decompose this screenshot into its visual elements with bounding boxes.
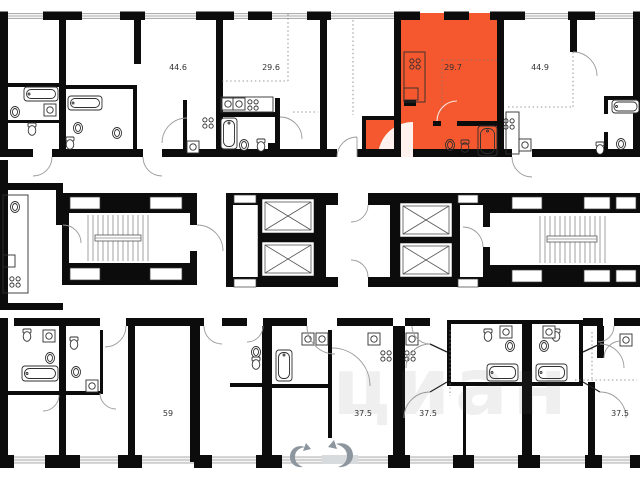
- elevator-shaft-4: [398, 241, 454, 279]
- staircase-right: [540, 216, 605, 263]
- sink-icon: [11, 107, 20, 118]
- elevator-shaft-1: [260, 197, 316, 235]
- cian-swirl-icon: [290, 443, 311, 467]
- sink-icon: [74, 123, 83, 134]
- washer-icon: [543, 326, 555, 338]
- stove-icon: [248, 100, 258, 110]
- elevator-shaft-2: [260, 240, 316, 278]
- kitchen-counter: [506, 112, 519, 154]
- washer-icon: [500, 326, 512, 338]
- unit-label-59: 59: [163, 409, 173, 418]
- washer-icon: [43, 330, 55, 342]
- bathtub-icon: [24, 87, 58, 101]
- washer-icon: [620, 334, 632, 346]
- stove-icon: [10, 277, 20, 287]
- unit-label-37-5-a: 37.5: [354, 409, 372, 418]
- kitchen-sink-icon: [222, 98, 234, 110]
- interior-walls-top: [0, 12, 640, 157]
- bathtub-icon: [276, 350, 292, 381]
- washer-icon: [187, 141, 199, 153]
- bathtub-icon: [22, 366, 58, 381]
- unit-label-29-7: 29.7: [444, 63, 462, 72]
- unit-label-44-6: 44.6: [169, 63, 187, 72]
- sink-icon: [11, 202, 20, 213]
- elevator-shafts: [260, 197, 454, 279]
- washer-icon: [519, 139, 531, 151]
- washer-icon: [86, 380, 98, 392]
- bathtub-icon: [221, 118, 237, 149]
- watermark-text: циан: [333, 343, 572, 433]
- unit-label-44-9: 44.9: [531, 63, 549, 72]
- sink-icon: [46, 353, 55, 364]
- elevator-shaft-3: [398, 201, 454, 239]
- unit-label-37-5-b: 37.5: [419, 409, 437, 418]
- toilet-icon: [70, 337, 78, 349]
- unit-label-29-6: 29.6: [262, 63, 280, 72]
- sink-icon: [240, 140, 249, 151]
- bathtub-icon: [612, 100, 639, 113]
- washer-icon: [316, 333, 328, 345]
- toilet-icon: [28, 123, 36, 135]
- kitchen-sink-icon: [233, 98, 245, 110]
- sink-icon: [113, 128, 122, 139]
- toilet-icon: [257, 139, 265, 151]
- toilet-icon: [66, 137, 74, 149]
- toilet-icon: [596, 142, 604, 154]
- sink-icon: [72, 367, 81, 378]
- washer-icon: [44, 104, 56, 116]
- bathtub-icon: [68, 96, 102, 110]
- selected-unit-29-7[interactable]: [362, 13, 497, 157]
- toilet-icon: [484, 329, 492, 341]
- floor-plan-svg: циан 44.6 29.6 29.7 44.9 59 37.5 37.5 37…: [0, 0, 640, 480]
- floor-plan-canvas: циан 44.6 29.6 29.7 44.9 59 37.5 37.5 37…: [0, 0, 640, 480]
- stove-icon: [203, 118, 213, 128]
- toilet-icon: [252, 357, 260, 369]
- sink-icon: [617, 139, 626, 150]
- stove-icon: [504, 119, 514, 129]
- staircase-left: [88, 215, 148, 261]
- unit-label-37-5-c: 37.5: [611, 409, 629, 418]
- toilet-icon: [23, 329, 31, 341]
- sink-icon: [252, 347, 261, 358]
